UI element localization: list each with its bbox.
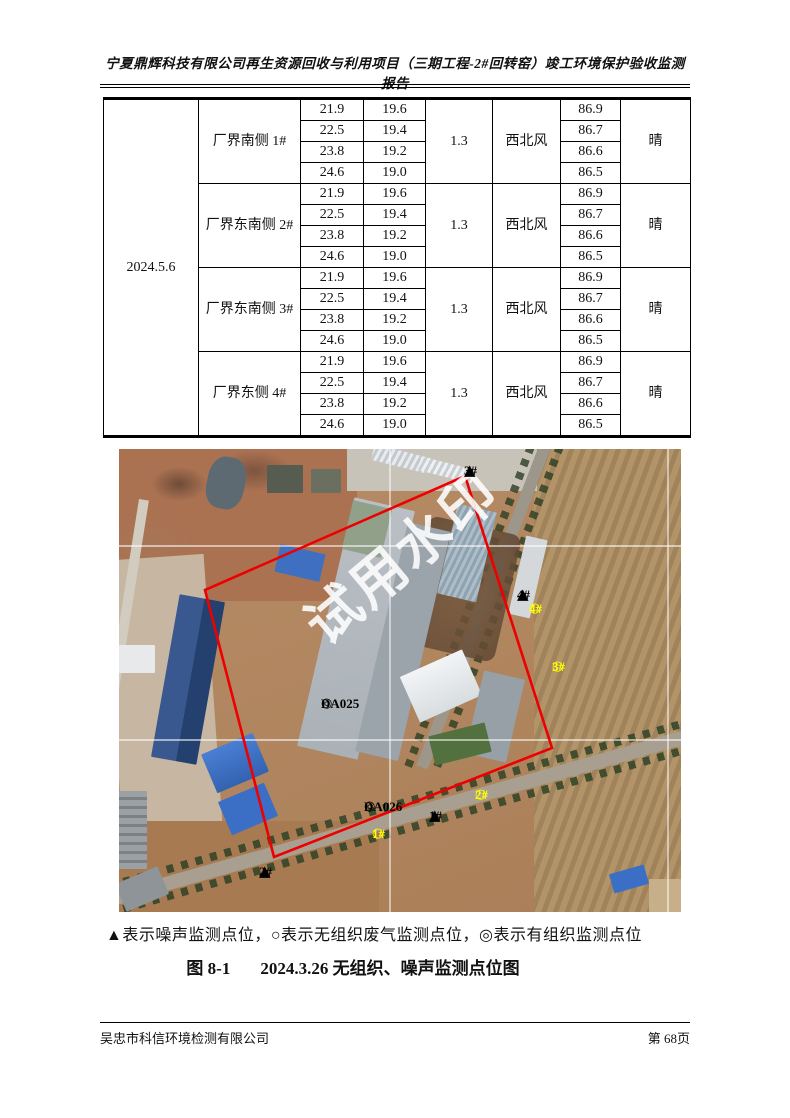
wind-speed-cell: 1.3 [426,184,493,268]
table-cell: 19.2 [364,309,426,330]
table-cell: 24.6 [301,414,364,436]
table-cell: 86.6 [561,225,621,246]
gas-point-3: ○ 3# [552,660,563,673]
table-cell: 24.6 [301,246,364,267]
marker-label: 4# [529,601,542,617]
table-cell: 22.5 [301,288,364,309]
table-cell: 21.9 [301,351,364,372]
footer-company: 吴忠市科信环境检测有限公司 [100,1028,269,1047]
table-cell: 19.2 [364,393,426,414]
table-cell: 19.6 [364,99,426,121]
table-cell: 19.0 [364,246,426,267]
table-cell: 86.7 [561,288,621,309]
table-cell: 86.5 [561,330,621,351]
location-cell: 厂界东南侧 2# [199,184,301,268]
table-cell: 19.6 [364,267,426,288]
weather-cell: 晴 [621,99,691,184]
table-cell: 19.6 [364,351,426,372]
date-cell: 2024.5.6 [104,99,199,437]
table-cell: 21.9 [301,99,364,121]
table-cell: 21.9 [301,267,364,288]
table-cell: 86.9 [561,267,621,288]
marker-label: 3# [552,659,565,675]
table-row: 2024.5.6 厂界南侧 1# 21.9 19.6 1.3 西北风 86.9 … [104,99,691,121]
table-cell: 19.0 [364,163,426,184]
figure-caption: 图 8-1 2024.3.26 无组织、噪声监测点位图 [58,954,648,979]
table-cell: 19.0 [364,414,426,436]
table-cell: 23.8 [301,393,364,414]
wind-dir-cell: 西北风 [493,184,561,268]
noise-point-2: ▲ 2# [259,864,271,879]
weather-cell: 晴 [621,267,691,351]
table-cell: 86.9 [561,351,621,372]
figure-number: 图 8-1 [186,954,230,979]
table-cell: 86.9 [561,184,621,205]
header-divider [100,84,690,88]
table-cell: 22.5 [301,204,364,225]
wind-dir-cell: 西北风 [493,99,561,184]
marker-label: DA025 [321,696,359,712]
table-cell: 86.9 [561,99,621,121]
table-cell: 23.8 [301,225,364,246]
table-cell: 22.5 [301,121,364,142]
table-cell: 19.4 [364,372,426,393]
weather-cell: 晴 [621,351,691,436]
report-page: 宁夏鼎辉科技有限公司再生资源回收与利用项目（三期工程-2#回转窑）竣工环境保护验… [0,0,790,1118]
noise-point-1: ▲ 1# [429,808,441,823]
location-cell: 厂界东南侧 3# [199,267,301,351]
table-cell: 86.7 [561,121,621,142]
table-cell: 86.5 [561,163,621,184]
table-cell: 86.6 [561,142,621,163]
table-cell: 19.4 [364,288,426,309]
wind-speed-cell: 1.3 [426,99,493,184]
table-cell: 19.2 [364,142,426,163]
table-cell: 19.4 [364,204,426,225]
page-footer: 吴忠市科信环境检测有限公司 第 68页 [100,1028,690,1047]
table-cell: 19.2 [364,225,426,246]
marker-label: 2# [475,787,488,803]
wind-dir-cell: 西北风 [493,267,561,351]
table-cell: 22.5 [301,372,364,393]
gas-point-1: ○ 1# [372,827,383,840]
noise-point-3: ▲ 3# [464,463,476,478]
table-cell: 86.6 [561,393,621,414]
table-cell: 21.9 [301,184,364,205]
wind-dir-cell: 西北风 [493,351,561,436]
table-cell: 19.0 [364,330,426,351]
gas-point-4: ○ 4# [529,602,540,615]
marker-label: DA026 [364,799,402,815]
figure-title: 2024.3.26 无组织、噪声监测点位图 [260,954,519,979]
wind-speed-cell: 1.3 [426,351,493,436]
table-cell: 23.8 [301,142,364,163]
stack-point-da026: ◎ DA026 [364,800,375,813]
gas-point-2: ○ 2# [475,788,486,801]
map-legend-text: ▲表示噪声监测点位，○表示无组织废气监测点位，◎表示有组织监测点位 [106,921,690,945]
marker-label: 3# [464,463,477,479]
marker-label: 2# [259,864,272,880]
footer-divider [100,1022,690,1023]
site-map-image: 试用水印 ▲ 3# ▲ 4# ○ 4# ○ 3# ◎ DA025 ◎ DA026… [119,449,681,912]
footer-page-number: 第 68页 [648,1028,690,1047]
noise-point-4: ▲ 4# [517,587,529,602]
wind-speed-cell: 1.3 [426,267,493,351]
marker-label: 1# [372,826,385,842]
table-cell: 24.6 [301,330,364,351]
table-cell: 86.7 [561,204,621,225]
location-cell: 厂界南侧 1# [199,99,301,184]
location-cell: 厂界东侧 4# [199,351,301,436]
weather-cell: 晴 [621,184,691,268]
table-cell: 86.6 [561,309,621,330]
table-cell: 86.7 [561,372,621,393]
table-cell: 19.6 [364,184,426,205]
monitoring-data-table: 2024.5.6 厂界南侧 1# 21.9 19.6 1.3 西北风 86.9 … [103,97,691,438]
table-cell: 86.5 [561,246,621,267]
table-cell: 23.8 [301,309,364,330]
table-cell: 19.4 [364,121,426,142]
table-cell: 86.5 [561,414,621,436]
marker-label: 1# [429,808,442,824]
table-cell: 24.6 [301,163,364,184]
stack-point-da025: ◎ DA025 [321,697,332,710]
